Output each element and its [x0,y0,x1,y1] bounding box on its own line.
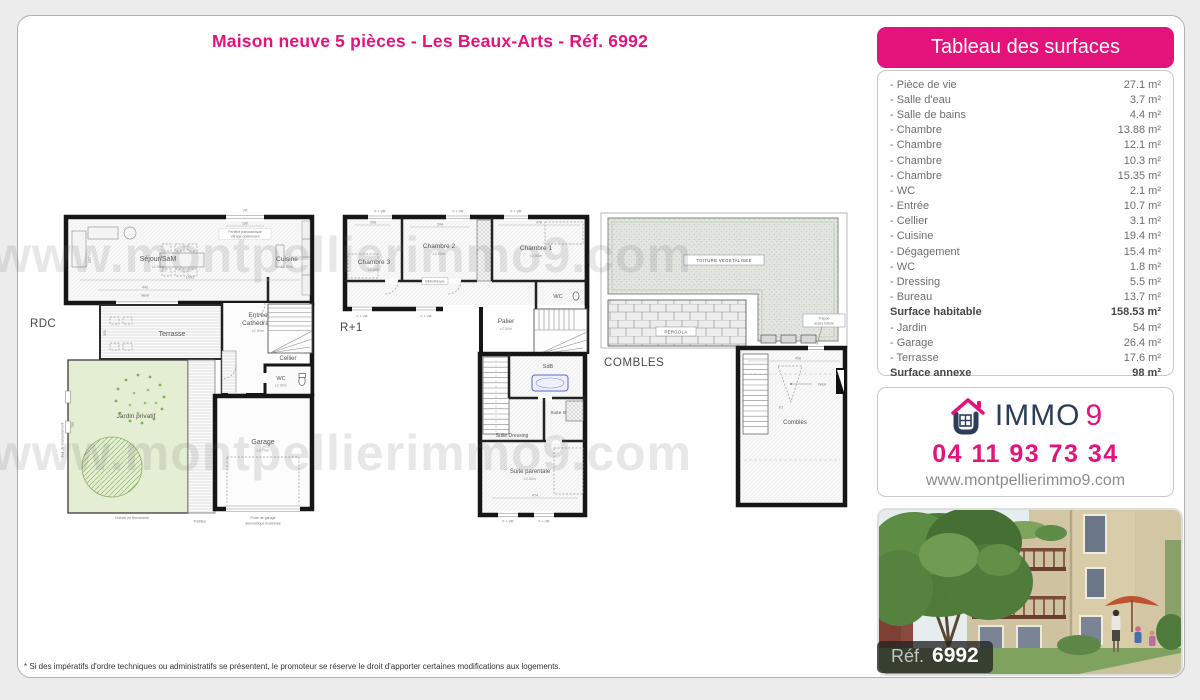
brand-9: 9 [1085,399,1103,433]
surface-row-value: 3.1 m² [1130,215,1161,227]
surface-row-value: 4.4 m² [1130,109,1161,121]
surface-row: - Chambre 10.3 m² [890,153,1161,168]
svg-text:±2.80m: ±2.80m [252,329,265,333]
svg-text:Fenêtre panoramique: Fenêtre panoramique [228,230,262,234]
svg-text:456: 456 [795,357,801,361]
surface-row-label: - Jardin [890,322,927,334]
plan-label-rdc: RDC [30,318,56,330]
svg-text:Mur de soubassement: Mur de soubassement [61,423,65,458]
surface-row-label: - Chambre [890,155,942,167]
svg-text:Vitrage opalescent: Vitrage opalescent [231,235,260,239]
surface-row-label: - Chambre [890,170,942,182]
ref-number: 6992 [932,641,979,671]
surface-row-value: 15.35 m² [1118,170,1161,182]
surface-row: - Chambre 13.88 m² [890,123,1161,138]
surface-row: Surface habitable 158.53 m² [890,305,1161,320]
svg-text:Cuisine: Cuisine [276,256,298,263]
agency-logo: IMMO9 [948,395,1103,437]
svg-text:TOITURE VEGETALISEE: TOITURE VEGETALISEE [696,258,752,263]
plan-label-r1: R+1 [340,322,363,334]
surface-row-value: 1.8 m² [1130,261,1161,273]
svg-text:180: 180 [242,222,248,226]
svg-text:Jardin privatif: Jardin privatif [117,413,156,420]
svg-text:1093: 1093 [186,276,194,280]
surface-row-value: 15.4 m² [1124,246,1161,258]
surface-row-label: - Chambre [890,124,942,136]
svg-text:±2.50m: ±2.50m [524,477,537,481]
ref-label: Réf. [891,641,924,671]
svg-text:755: 755 [71,422,75,428]
house-logo-icon [948,396,990,436]
svg-text:Chambre 1: Chambre 1 [520,245,553,252]
svg-text:394: 394 [437,223,443,227]
surface-row-value: 26.4 m² [1124,337,1161,349]
surface-row: - Entrée 10.7 m² [890,199,1161,214]
svg-text:±2.50m: ±2.50m [368,268,381,272]
surface-row: Surface annexe 98 m² [890,366,1161,381]
legal-footnote: * Si des impératifs d'ordre techniques o… [24,662,561,671]
svg-text:±2.80m: ±2.80m [275,384,288,388]
surface-row-value: 98 m² [1132,367,1161,379]
surface-row-label: - Pièce de vie [890,79,957,91]
svg-text:±2.50m: ±2.50m [152,265,165,269]
surface-row-value: 2.1 m² [1130,185,1161,197]
floorplan-rdc: VR 180 Fenêtre panoramique Vitrage opale… [60,205,335,530]
surface-row-label: - Dégagement [890,246,960,258]
plan-label-combles: COMBLES [604,357,664,369]
surface-row-label: - Entrée [890,200,929,212]
surfaces-table-title: Tableau des surfaces [931,36,1120,59]
surface-row-value: 13.7 m² [1124,291,1161,303]
surface-row: - Salle d'eau 3.7 m² [890,92,1161,107]
surface-row: - WC 2.1 m² [890,183,1161,198]
svg-text:Garage: Garage [251,439,274,446]
svg-text:Terrasse: Terrasse [159,331,186,338]
surface-row-value: 19.4 m² [1124,230,1161,242]
surface-row-label: - Cellier [890,215,928,227]
svg-text:268: 268 [370,221,376,225]
surface-row: - Chambre 15.35 m² [890,168,1161,183]
agency-phone: 04 11 93 73 34 [932,440,1118,469]
svg-text:478: 478 [536,221,542,225]
surface-row-value: 27.1 m² [1124,79,1161,91]
svg-text:F + VR: F + VR [357,315,368,319]
svg-text:SdB: SdB [543,364,554,370]
svg-text:440: 440 [142,286,148,290]
svg-text:Trappe: Trappe [819,317,830,321]
surface-row: - Chambre 12.1 m² [890,138,1161,153]
surface-row-value: 158.53 m² [1111,306,1161,318]
page-title: Maison neuve 5 pièces - Les Beaux-Arts -… [0,31,860,52]
surface-row-label: - Bureau [890,291,932,303]
floorplan-r1: Bibliothèque Chambre 3 ±2.50m Chambre 2 … [340,208,590,523]
svg-text:F + VR: F + VR [421,315,432,319]
surface-row-value: 17.6 m² [1124,352,1161,364]
surface-row: - Garage 26.4 m² [890,335,1161,350]
svg-text:PERGOLA: PERGOLA [664,330,687,335]
surface-row: - Pièce de vie 27.1 m² [890,77,1161,92]
surfaces-table-header: Tableau des surfaces [877,27,1174,68]
svg-text:WC: WC [553,294,562,300]
svg-text:Palier: Palier [498,318,515,325]
surface-row-label: - Terrasse [890,352,939,364]
brand-immo: IMMO [995,399,1081,433]
surface-row: - Terrasse 17.6 m² [890,350,1161,365]
svg-text:350: 350 [103,330,107,336]
svg-text:Bibliothèque: Bibliothèque [425,280,444,284]
surface-row: - Dressing 5.5 m² [890,274,1161,289]
agency-website: www.montpellierimmo9.com [926,472,1125,490]
svg-text:VR: VR [242,209,248,213]
surface-row-label: - Chambre [890,139,942,151]
surface-row: - Cellier 3.1 m² [890,214,1161,229]
svg-text:±2.50m: ±2.50m [530,254,543,258]
svg-text:automatique motorisée: automatique motorisée [245,522,281,526]
svg-text:Portillon: Portillon [194,520,207,524]
surface-row: - Jardin 54 m² [890,320,1161,335]
svg-text:Combles: Combles [783,420,807,426]
surface-row-label: - WC [890,261,915,273]
surface-row-value: 10.3 m² [1124,155,1161,167]
svg-text:F + VR: F + VR [539,520,550,524]
surface-row-value: 12.1 m² [1124,139,1161,151]
svg-text:297: 297 [88,257,92,263]
surface-row: - Salle de bains 4.4 m² [890,107,1161,122]
surface-row: - Dégagement 15.4 m² [890,244,1161,259]
svg-text:WC: WC [276,376,285,382]
svg-text:Clôture en ferronnerie: Clôture en ferronnerie [115,516,149,520]
svg-text:Suite parentale: Suite parentale [510,469,551,475]
svg-text:±2.50m: ±2.50m [433,252,446,256]
svg-text:Velux: Velux [818,383,827,387]
surface-row: - Cuisine 19.4 m² [890,229,1161,244]
surface-row-value: 10.7 m² [1124,200,1161,212]
photo-ref-badge: Réf. 6992 [877,641,993,673]
surface-row-value: 3.7 m² [1130,94,1161,106]
svg-text:Chambre 2: Chambre 2 [423,243,456,250]
surface-row-label: Surface annexe [890,367,971,379]
surfaces-table: - Pièce de vie 27.1 m² - Salle d'eau 3.7… [877,70,1174,376]
surface-row-label: - Garage [890,337,933,349]
svg-text:F + VR: F + VR [511,210,522,214]
svg-text:Porte de garage: Porte de garage [250,516,275,520]
svg-text:±2.70m: ±2.70m [257,449,270,453]
surface-row-value: 54 m² [1133,322,1161,334]
surface-row-label: - Salle de bains [890,109,966,121]
surface-row-label: Surface habitable [890,306,982,318]
svg-text:Séjour/SàM: Séjour/SàM [140,256,177,263]
surface-row-label: - Salle d'eau [890,94,951,106]
svg-text:Seuil: Seuil [141,294,149,298]
surface-row-label: - Cuisine [890,230,933,242]
surface-row: - Bureau 13.7 m² [890,290,1161,305]
svg-text:474: 474 [532,494,538,498]
surface-row-label: - Dressing [890,276,940,288]
surface-row-label: - WC [890,185,915,197]
surface-row-value: 5.5 m² [1130,276,1161,288]
svg-text:F + VR: F + VR [453,210,464,214]
surface-row-value: 13.88 m² [1118,124,1161,136]
svg-text:accès toiture: accès toiture [814,322,834,326]
svg-text:Cellier: Cellier [279,356,296,362]
svg-text:Chambre 3: Chambre 3 [358,259,391,266]
svg-text:±2.50m: ±2.50m [500,327,513,331]
agency-contact-box: IMMO9 04 11 93 73 34 www.montpellierimmo… [877,387,1174,497]
svg-text:F + VR: F + VR [503,520,514,524]
svg-text:F + VR: F + VR [375,210,386,214]
svg-text:Entrée: Entrée [248,312,268,319]
surface-row: - WC 1.8 m² [890,259,1161,274]
svg-text:±2.50m: ±2.50m [281,265,294,269]
svg-text:Suite Dressing: Suite Dressing [496,433,529,439]
